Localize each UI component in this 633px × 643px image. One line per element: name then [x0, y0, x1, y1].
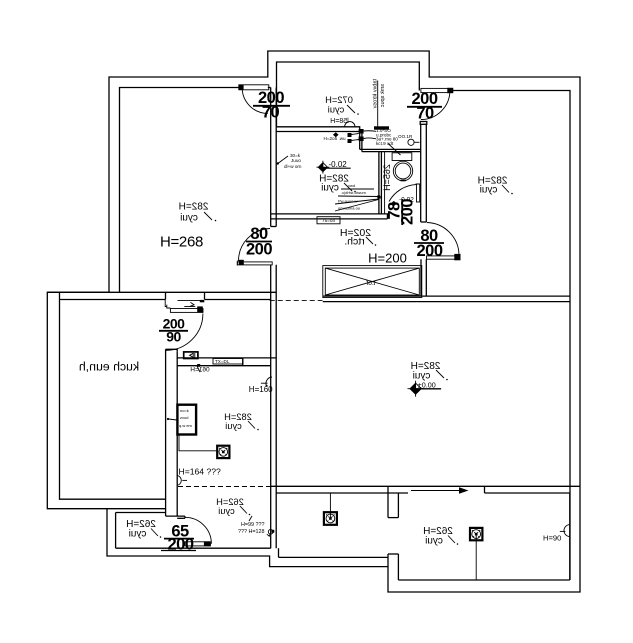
svg-text:no=k: no=k [180, 408, 189, 413]
svg-text:75=04: 75=04 [322, 218, 335, 223]
svg-text:TX=DL: TX=DL [215, 359, 230, 364]
svg-text:t:of: t:of [366, 280, 375, 287]
svg-text:cyui: cyui [225, 421, 242, 431]
svg-text:061=H: 061=H [190, 367, 210, 374]
svg-text:cyui: cyui [425, 536, 443, 547]
svg-text:cyui: cyui [180, 213, 198, 224]
svg-text:70: 70 [262, 104, 280, 122]
svg-text:.c|dHst.ciwum: .c|dHst.ciwum [341, 190, 366, 195]
svg-text:H=90: H=90 [543, 534, 561, 543]
svg-text:zvod: zvod [180, 415, 188, 420]
svg-text:cyui: cyui [328, 105, 345, 115]
svg-text:200: 200 [246, 241, 272, 259]
svg-text:Juuo: Juuo [291, 158, 301, 163]
svg-text:265=H: 265=H [382, 164, 392, 191]
svg-text:H=164 ???: H=164 ??? [179, 467, 222, 477]
svg-text:200: 200 [416, 242, 442, 260]
svg-text:282=H: 282=H [179, 202, 209, 213]
svg-text:kuch eun,h: kuch eun,h [79, 360, 139, 374]
svg-text:dl+w orn: dl+w orn [284, 164, 302, 169]
svg-text:H=99 ???: H=99 ??? [241, 522, 265, 528]
svg-text:H=2o5 .wu: H=2o5 .wu [324, 136, 347, 141]
svg-text:??? H=128: ??? H=128 [238, 529, 265, 535]
svg-text:OO.1R: OO.1R [398, 134, 413, 139]
svg-text:H=200: H=200 [368, 251, 407, 266]
svg-text:smk spuc: smk spuc [380, 84, 386, 107]
svg-text:-0.02: -0.02 [399, 197, 414, 204]
svg-text:kct.9 xdt: kct.9 xdt [376, 141, 394, 146]
svg-text:xwd: xwd [348, 183, 355, 188]
svg-text:H=268: H=268 [160, 234, 203, 251]
svg-text:cyui: cyui [321, 183, 339, 194]
svg-text:072=H: 072=H [325, 95, 353, 105]
svg-text:cyui: cyui [129, 529, 147, 540]
svg-text:rtch.: rtch. [344, 236, 364, 248]
svg-text:H=160: H=160 [249, 385, 273, 394]
svg-text:q.w em: q.w em [179, 423, 193, 428]
svg-text:cyui: cyui [480, 185, 498, 196]
svg-text:90: 90 [166, 329, 181, 345]
svg-text:cyui: cyui [218, 506, 235, 516]
svg-text:70: 70 [416, 105, 434, 123]
